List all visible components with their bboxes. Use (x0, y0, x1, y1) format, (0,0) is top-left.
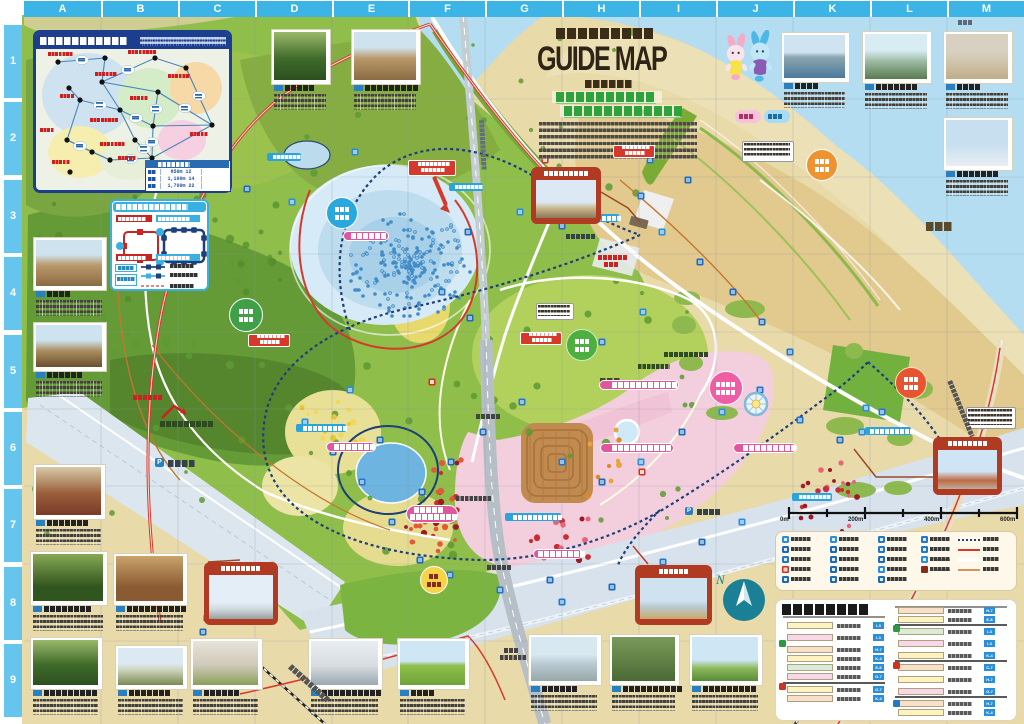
svg-text:N: N (715, 572, 726, 587)
